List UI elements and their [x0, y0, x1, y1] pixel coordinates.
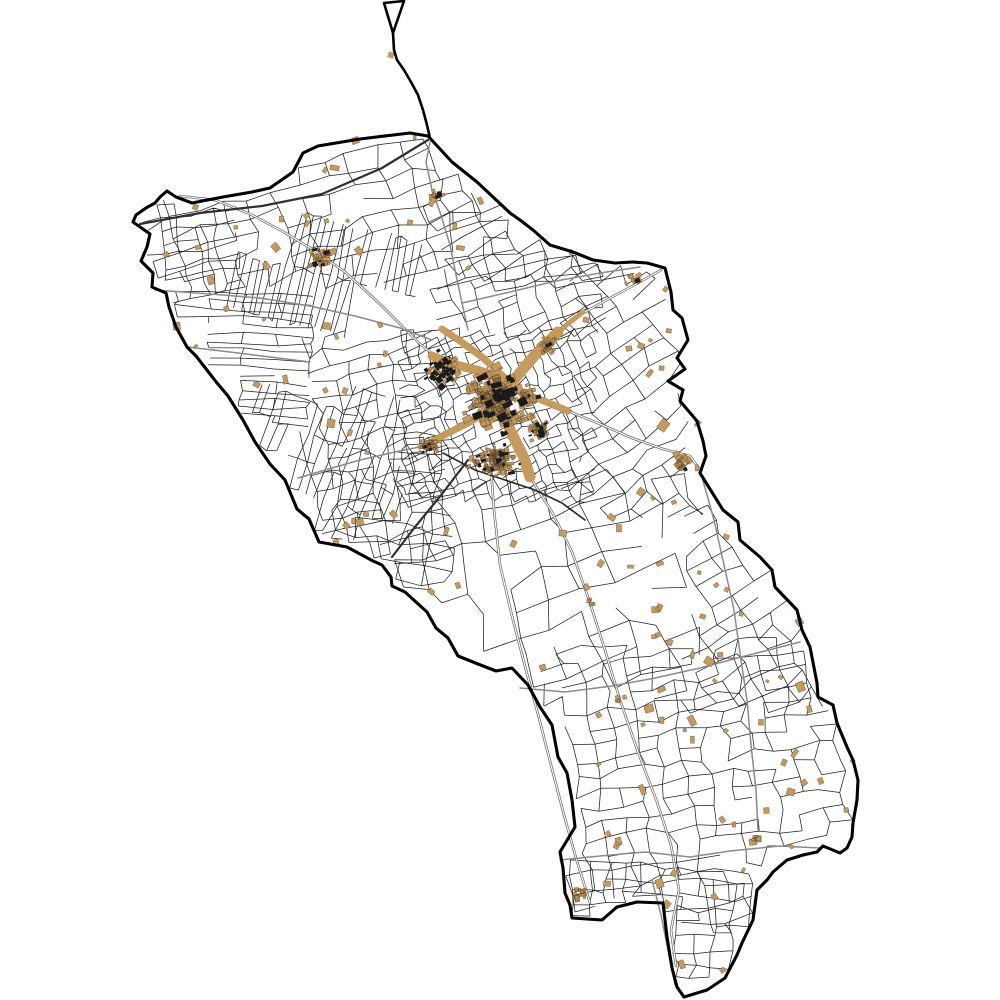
cadastral-map [0, 0, 1000, 1000]
boundary-antenna-triangle [384, 1, 404, 33]
parcel-lines [226, 213, 422, 338]
boundary-antenna-stem [393, 33, 430, 138]
road [560, 846, 820, 860]
road [490, 455, 590, 903]
building-cluster [749, 835, 761, 845]
parcel-lines [560, 252, 703, 518]
parcel-lines [252, 384, 402, 540]
cadastral-map-canvas [0, 0, 1000, 1000]
parcel-lines [541, 637, 853, 933]
municipal-boundary [133, 133, 858, 997]
road-centerline [490, 455, 590, 903]
road-centerline [530, 477, 679, 966]
roads-layer [140, 140, 820, 985]
parcel-lines [380, 469, 703, 699]
building-cluster [573, 888, 586, 903]
municipal-boundary-layer [133, 1, 858, 997]
road [187, 347, 310, 362]
parcel-boundaries-layer [143, 139, 853, 978]
road [530, 477, 679, 966]
